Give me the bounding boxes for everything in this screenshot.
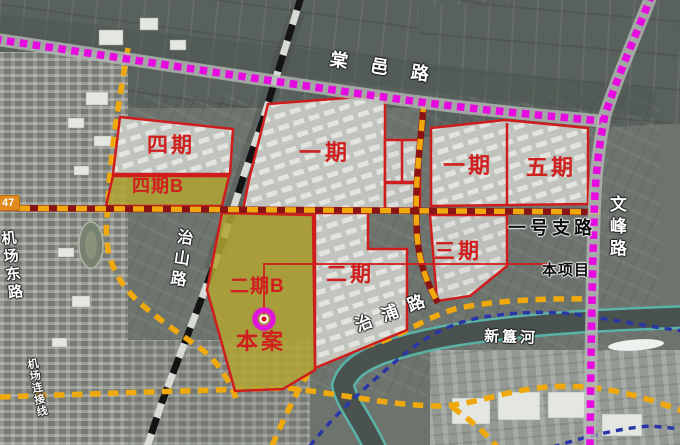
planning-map[interactable]: 棠邑路 文峰路 治山路 机场东路 治浦路 机场连接线 新簋河 一号支路 本项目 … xyxy=(0,0,680,445)
road-yihao-base xyxy=(0,208,600,212)
phase-label-2: 二期 xyxy=(326,264,374,286)
phase-label-5: 五期 xyxy=(526,156,576,179)
road-label-yihao-zhilu: 一号支路 xyxy=(508,219,596,238)
site-label-benan: 本案 xyxy=(236,330,286,353)
phase-label-1-west: 一期 xyxy=(299,141,351,164)
phase-label-1-east: 一期 xyxy=(443,154,493,177)
phase-label-2b: 二期B xyxy=(230,277,285,297)
phase-label-3: 三期 xyxy=(434,241,482,263)
road-label-wenfeng: 文峰路 xyxy=(607,195,625,261)
route-badge-47: 47 xyxy=(0,195,20,211)
region-phase2b-site xyxy=(207,213,315,391)
phase-label-4b: 四期B xyxy=(132,177,184,196)
phase-label-4: 四期 xyxy=(147,135,195,157)
river-label-xingui: 新簋河 xyxy=(484,329,539,347)
river-sandbar xyxy=(608,338,665,353)
project-label: 本项目 xyxy=(542,263,590,279)
stadium-oval xyxy=(79,222,103,268)
site-marker xyxy=(255,310,273,328)
